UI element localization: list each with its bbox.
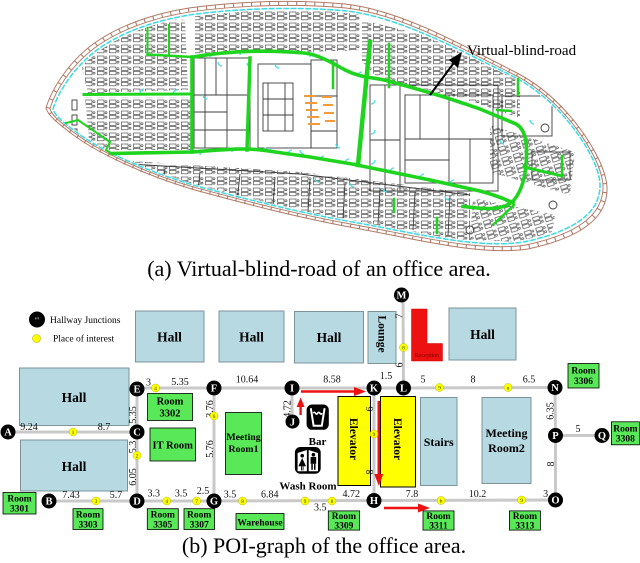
svg-text:5.35: 5.35 [128,406,139,424]
svg-text:Room: Room [7,495,31,505]
svg-text:M: M [397,291,407,302]
svg-text:8.7: 8.7 [98,422,111,433]
svg-text:10.64: 10.64 [236,375,259,386]
svg-text:7.8: 7.8 [406,489,419,500]
svg-text:N: N [551,383,559,394]
svg-text:F: F [211,384,217,395]
svg-text:1: 1 [72,430,75,436]
svg-text:3308: 3308 [616,435,635,445]
svg-text:Reception: Reception [415,353,439,359]
svg-text:7: 7 [395,314,406,319]
svg-text:4.72: 4.72 [342,489,360,500]
svg-text:3: 3 [146,378,151,389]
svg-text:4: 4 [154,386,157,392]
svg-text:6.35: 6.35 [546,402,557,420]
svg-text:8: 8 [402,346,405,352]
svg-text:6: 6 [213,414,216,420]
svg-text:5: 5 [421,375,426,386]
svg-text:u: u [507,386,510,392]
svg-text:9.24: 9.24 [20,422,38,433]
svg-text:Room: Room [151,511,175,521]
svg-text:Elevator: Elevator [347,418,359,460]
svg-text:Q: Q [598,431,606,442]
svg-text:3309: 3309 [334,522,353,532]
svg-text:10.2: 10.2 [469,489,487,500]
svg-text:Wash Room: Wash Room [279,481,336,493]
svg-text:6.5: 6.5 [523,375,536,386]
svg-text:3303: 3303 [79,521,98,531]
svg-text:Elevator: Elevator [391,418,403,460]
svg-text:'': '' [35,316,39,325]
svg-text:Place of interest: Place of interest [53,334,115,345]
svg-text:P: P [552,431,559,442]
svg-text:Hall: Hall [62,459,87,474]
svg-text:Hall: Hall [239,330,264,345]
svg-text:(b) POI-graph of the office ar: (b) POI-graph of the office area. [182,533,466,558]
svg-text:Room: Room [76,511,100,521]
svg-text:Meeting: Meeting [486,426,528,440]
svg-text:2: 2 [136,454,139,460]
svg-text:3311: 3311 [429,522,448,532]
svg-text:9: 9 [438,386,441,392]
svg-text:Room: Room [426,512,450,522]
svg-text:Room: Room [332,512,356,522]
svg-text:8: 8 [331,499,334,505]
svg-text:8: 8 [546,462,557,467]
svg-text:1.5: 1.5 [380,371,393,382]
svg-text:I: I [290,384,294,395]
svg-text:3313: 3313 [515,522,534,532]
svg-text:Room: Room [571,367,595,377]
svg-text:9: 9 [373,432,376,438]
svg-text:6.84: 6.84 [261,490,279,501]
svg-text:A: A [4,428,12,439]
svg-text:Room: Room [513,512,537,522]
svg-text:Hall: Hall [317,330,342,345]
svg-text:5.35: 5.35 [171,377,189,388]
svg-text:D: D [133,497,141,508]
svg-text:K: K [370,384,379,395]
svg-text:H: H [370,496,378,507]
svg-text:5: 5 [576,424,581,435]
svg-text:C: C [133,428,141,439]
svg-text:E: E [133,385,140,396]
svg-text:b: b [440,499,443,505]
svg-text:3301: 3301 [10,505,29,515]
svg-text:Room: Room [187,511,211,521]
svg-text:J: J [290,417,295,428]
svg-text:IT Room: IT Room [153,441,194,452]
svg-text:3.3: 3.3 [148,489,161,500]
svg-text:3302: 3302 [160,409,181,420]
svg-text:Virtual-blind-road: Virtual-blind-road [467,43,577,59]
svg-text:3.5: 3.5 [224,490,237,501]
svg-text:Meeting: Meeting [226,432,260,443]
svg-text:3: 3 [543,489,548,500]
svg-text:Room: Room [613,425,637,435]
svg-text:6: 6 [395,363,406,368]
svg-text:5.7: 5.7 [110,490,123,501]
svg-text:8: 8 [471,375,476,386]
svg-text:7: 7 [195,499,198,505]
svg-text:Hall: Hall [62,390,87,405]
svg-text:6.05: 6.05 [128,468,139,486]
svg-text:(a) Virtual-blind-road of an o: (a) Virtual-blind-road of an office area… [147,256,491,281]
svg-text:Hallway Junctions: Hallway Junctions [50,316,121,326]
svg-text:6: 6 [365,407,376,412]
svg-text:3307: 3307 [190,521,209,531]
svg-text:9: 9 [520,498,523,504]
svg-text:O: O [551,496,559,507]
svg-text:3305: 3305 [153,521,172,531]
svg-text:Stairs: Stairs [424,435,454,449]
svg-text:3306: 3306 [574,377,593,387]
svg-text:7.43: 7.43 [62,490,80,501]
svg-text:Hall: Hall [157,330,182,345]
svg-text:Room2: Room2 [488,441,525,455]
svg-text:4: 4 [165,499,168,505]
svg-text:Warehouse: Warehouse [237,519,282,529]
svg-text:5.76: 5.76 [205,440,216,458]
svg-text:3: 3 [95,499,98,505]
svg-text:8.58: 8.58 [323,375,341,386]
svg-text:Lounge: Lounge [376,316,388,353]
svg-text:8: 8 [241,499,244,505]
svg-text:Room1: Room1 [229,444,259,455]
svg-text:3.5: 3.5 [175,489,188,500]
svg-text:L: L [400,384,407,395]
svg-text:Bar: Bar [309,436,327,448]
svg-text:8: 8 [365,470,376,475]
svg-text:2.5: 2.5 [197,486,210,497]
svg-text:9: 9 [304,499,307,505]
svg-text:3.5: 3.5 [314,503,327,514]
svg-text:G: G [210,497,218,508]
svg-text:Hall: Hall [470,327,495,342]
svg-text:Room: Room [157,397,184,408]
svg-text:B: B [45,497,52,508]
